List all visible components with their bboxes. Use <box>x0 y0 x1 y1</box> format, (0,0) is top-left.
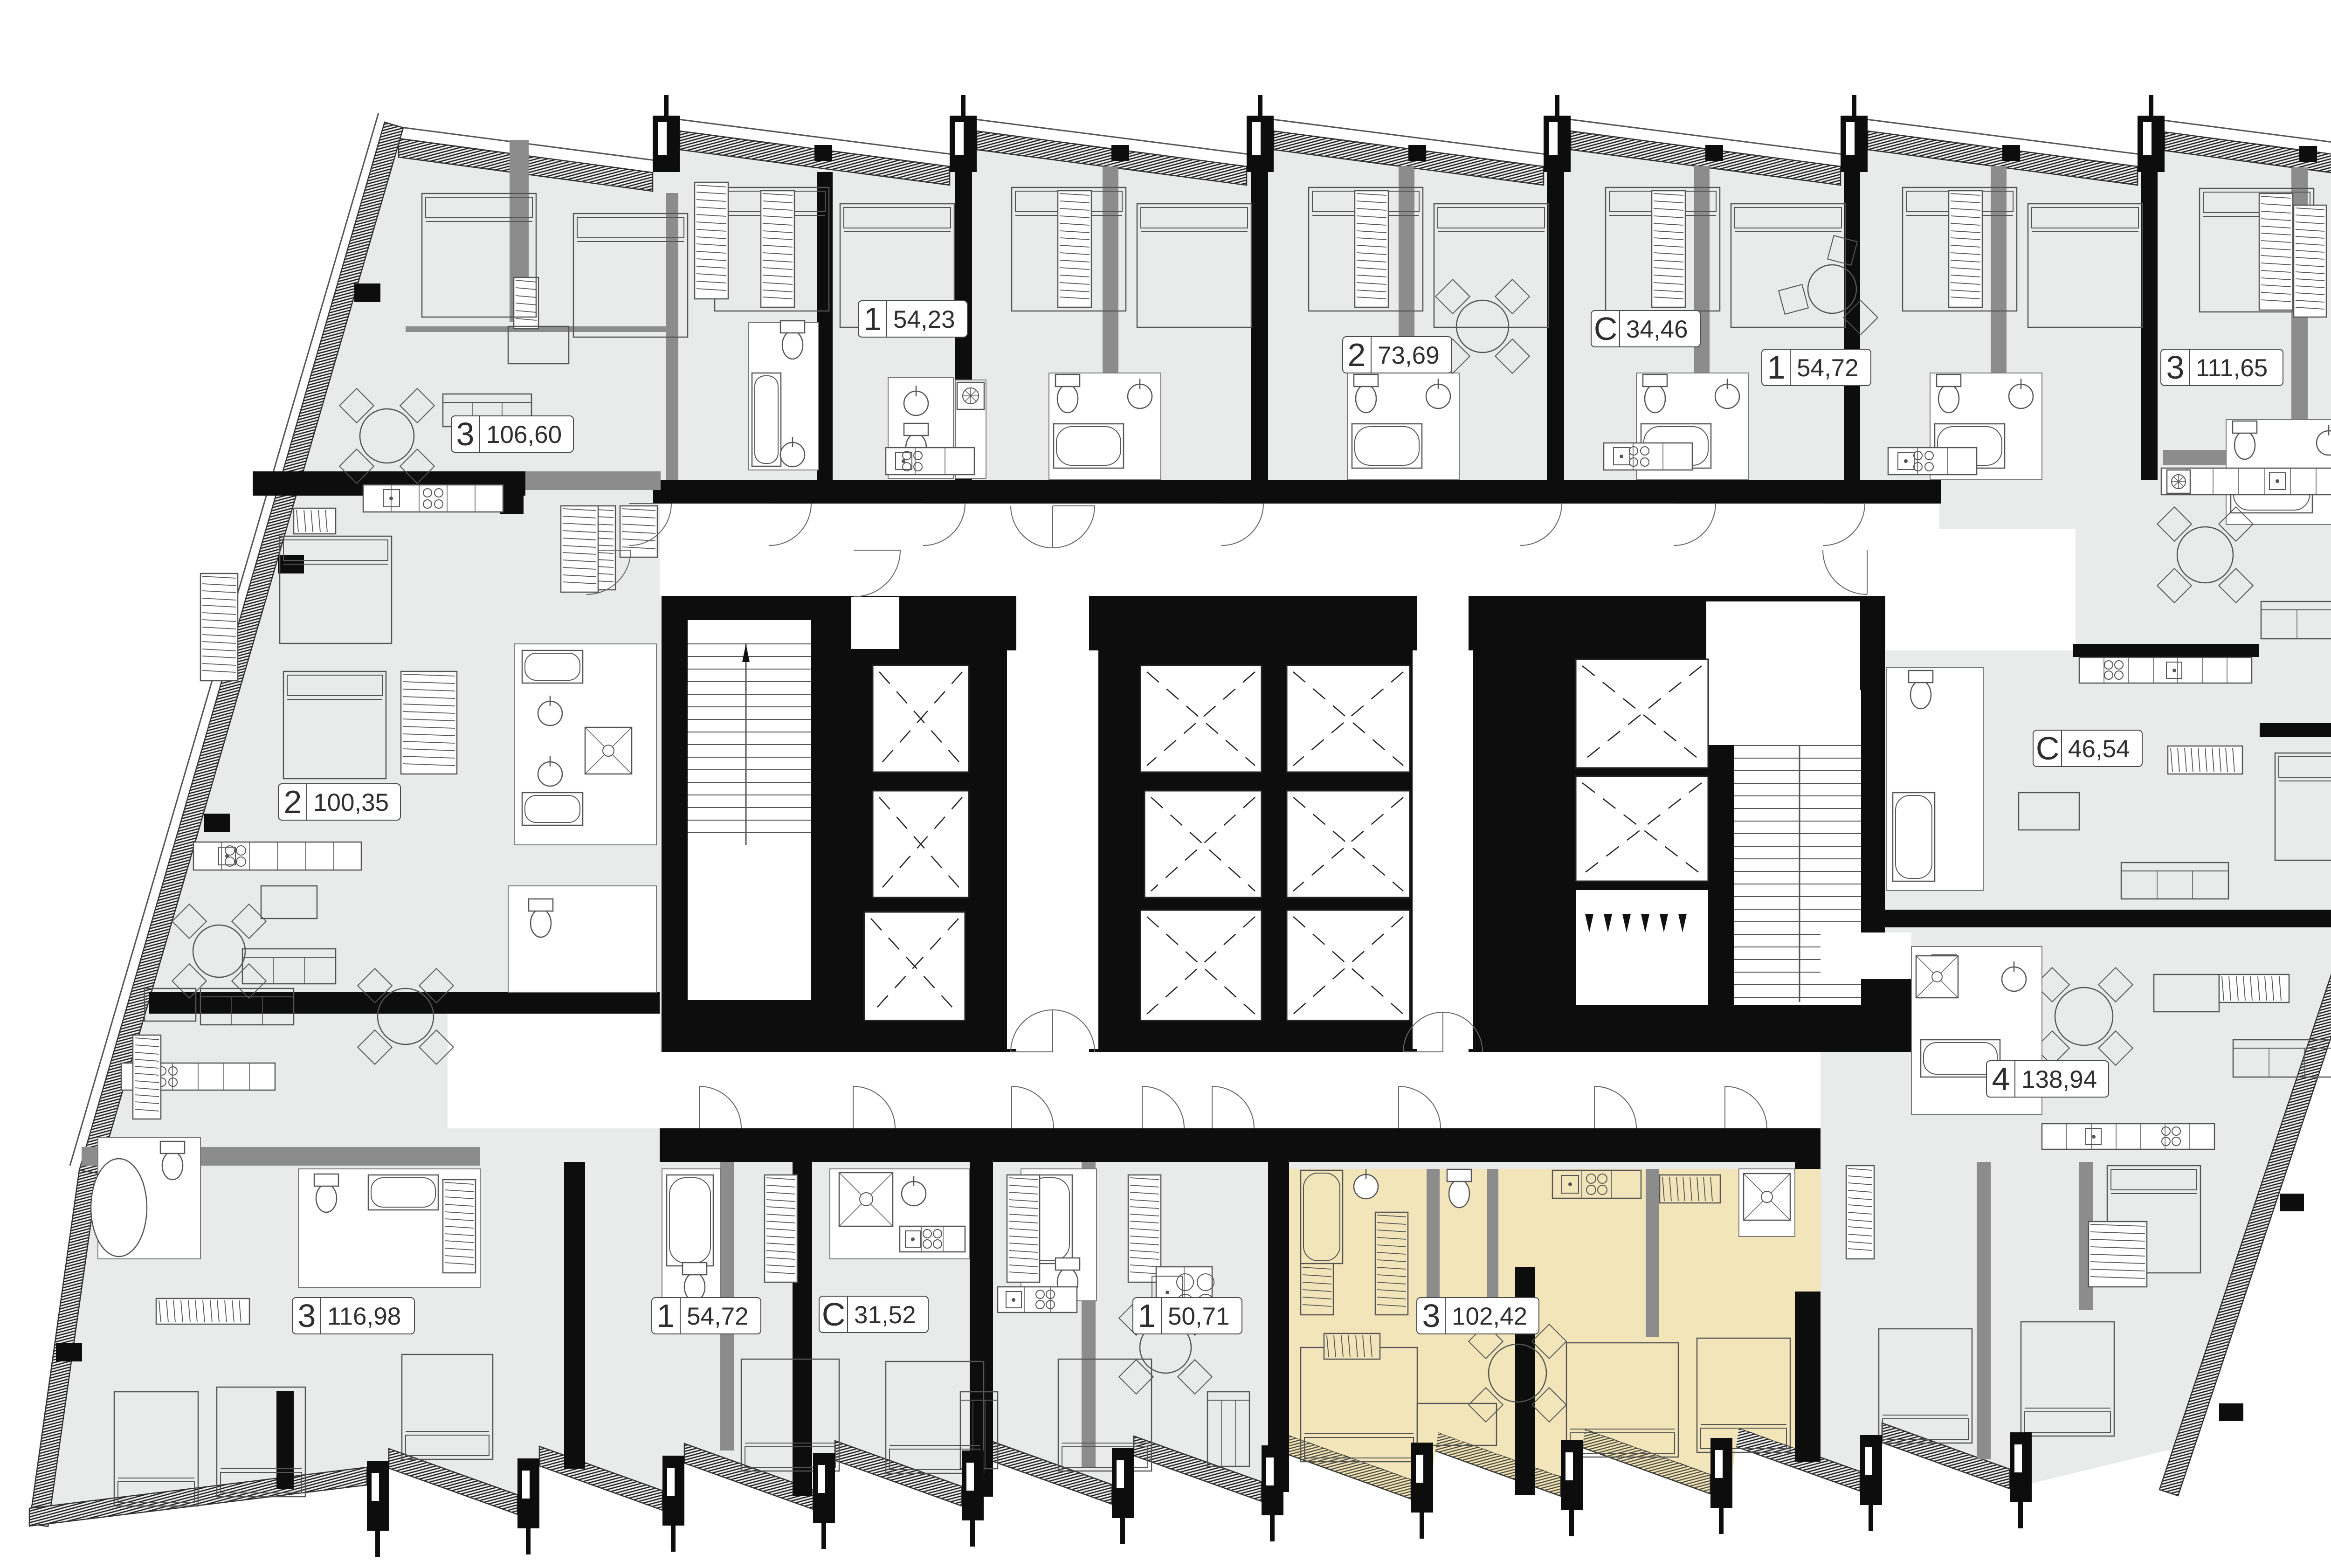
svg-text:106,60: 106,60 <box>486 421 562 449</box>
svg-text:2: 2 <box>284 784 302 820</box>
svg-text:C: C <box>2036 730 2060 767</box>
svg-text:102,42: 102,42 <box>1452 1303 1527 1330</box>
svg-text:46,54: 46,54 <box>2068 735 2130 763</box>
svg-text:31,52: 31,52 <box>854 1301 916 1329</box>
svg-text:1: 1 <box>864 301 882 337</box>
svg-text:3: 3 <box>1422 1298 1441 1334</box>
svg-text:54,23: 54,23 <box>893 306 955 333</box>
svg-text:73,69: 73,69 <box>1378 342 1440 369</box>
svg-text:1: 1 <box>1767 349 1786 386</box>
svg-text:50,71: 50,71 <box>1168 1303 1230 1330</box>
svg-text:C: C <box>1594 311 1618 347</box>
svg-text:3: 3 <box>298 1298 316 1334</box>
svg-text:100,35: 100,35 <box>313 789 389 816</box>
svg-text:4: 4 <box>1992 1061 2010 1097</box>
svg-text:3: 3 <box>456 416 475 452</box>
svg-text:1: 1 <box>657 1298 675 1334</box>
svg-text:138,94: 138,94 <box>2021 1066 2097 1093</box>
svg-text:C: C <box>822 1296 846 1333</box>
svg-text:116,98: 116,98 <box>327 1303 401 1330</box>
svg-text:34,46: 34,46 <box>1626 316 1688 343</box>
svg-text:111,65: 111,65 <box>2196 354 2268 382</box>
svg-text:2: 2 <box>1348 337 1366 373</box>
svg-text:3: 3 <box>2166 349 2185 386</box>
svg-text:54,72: 54,72 <box>687 1303 749 1330</box>
svg-text:1: 1 <box>1138 1298 1156 1334</box>
svg-text:54,72: 54,72 <box>1797 354 1859 382</box>
